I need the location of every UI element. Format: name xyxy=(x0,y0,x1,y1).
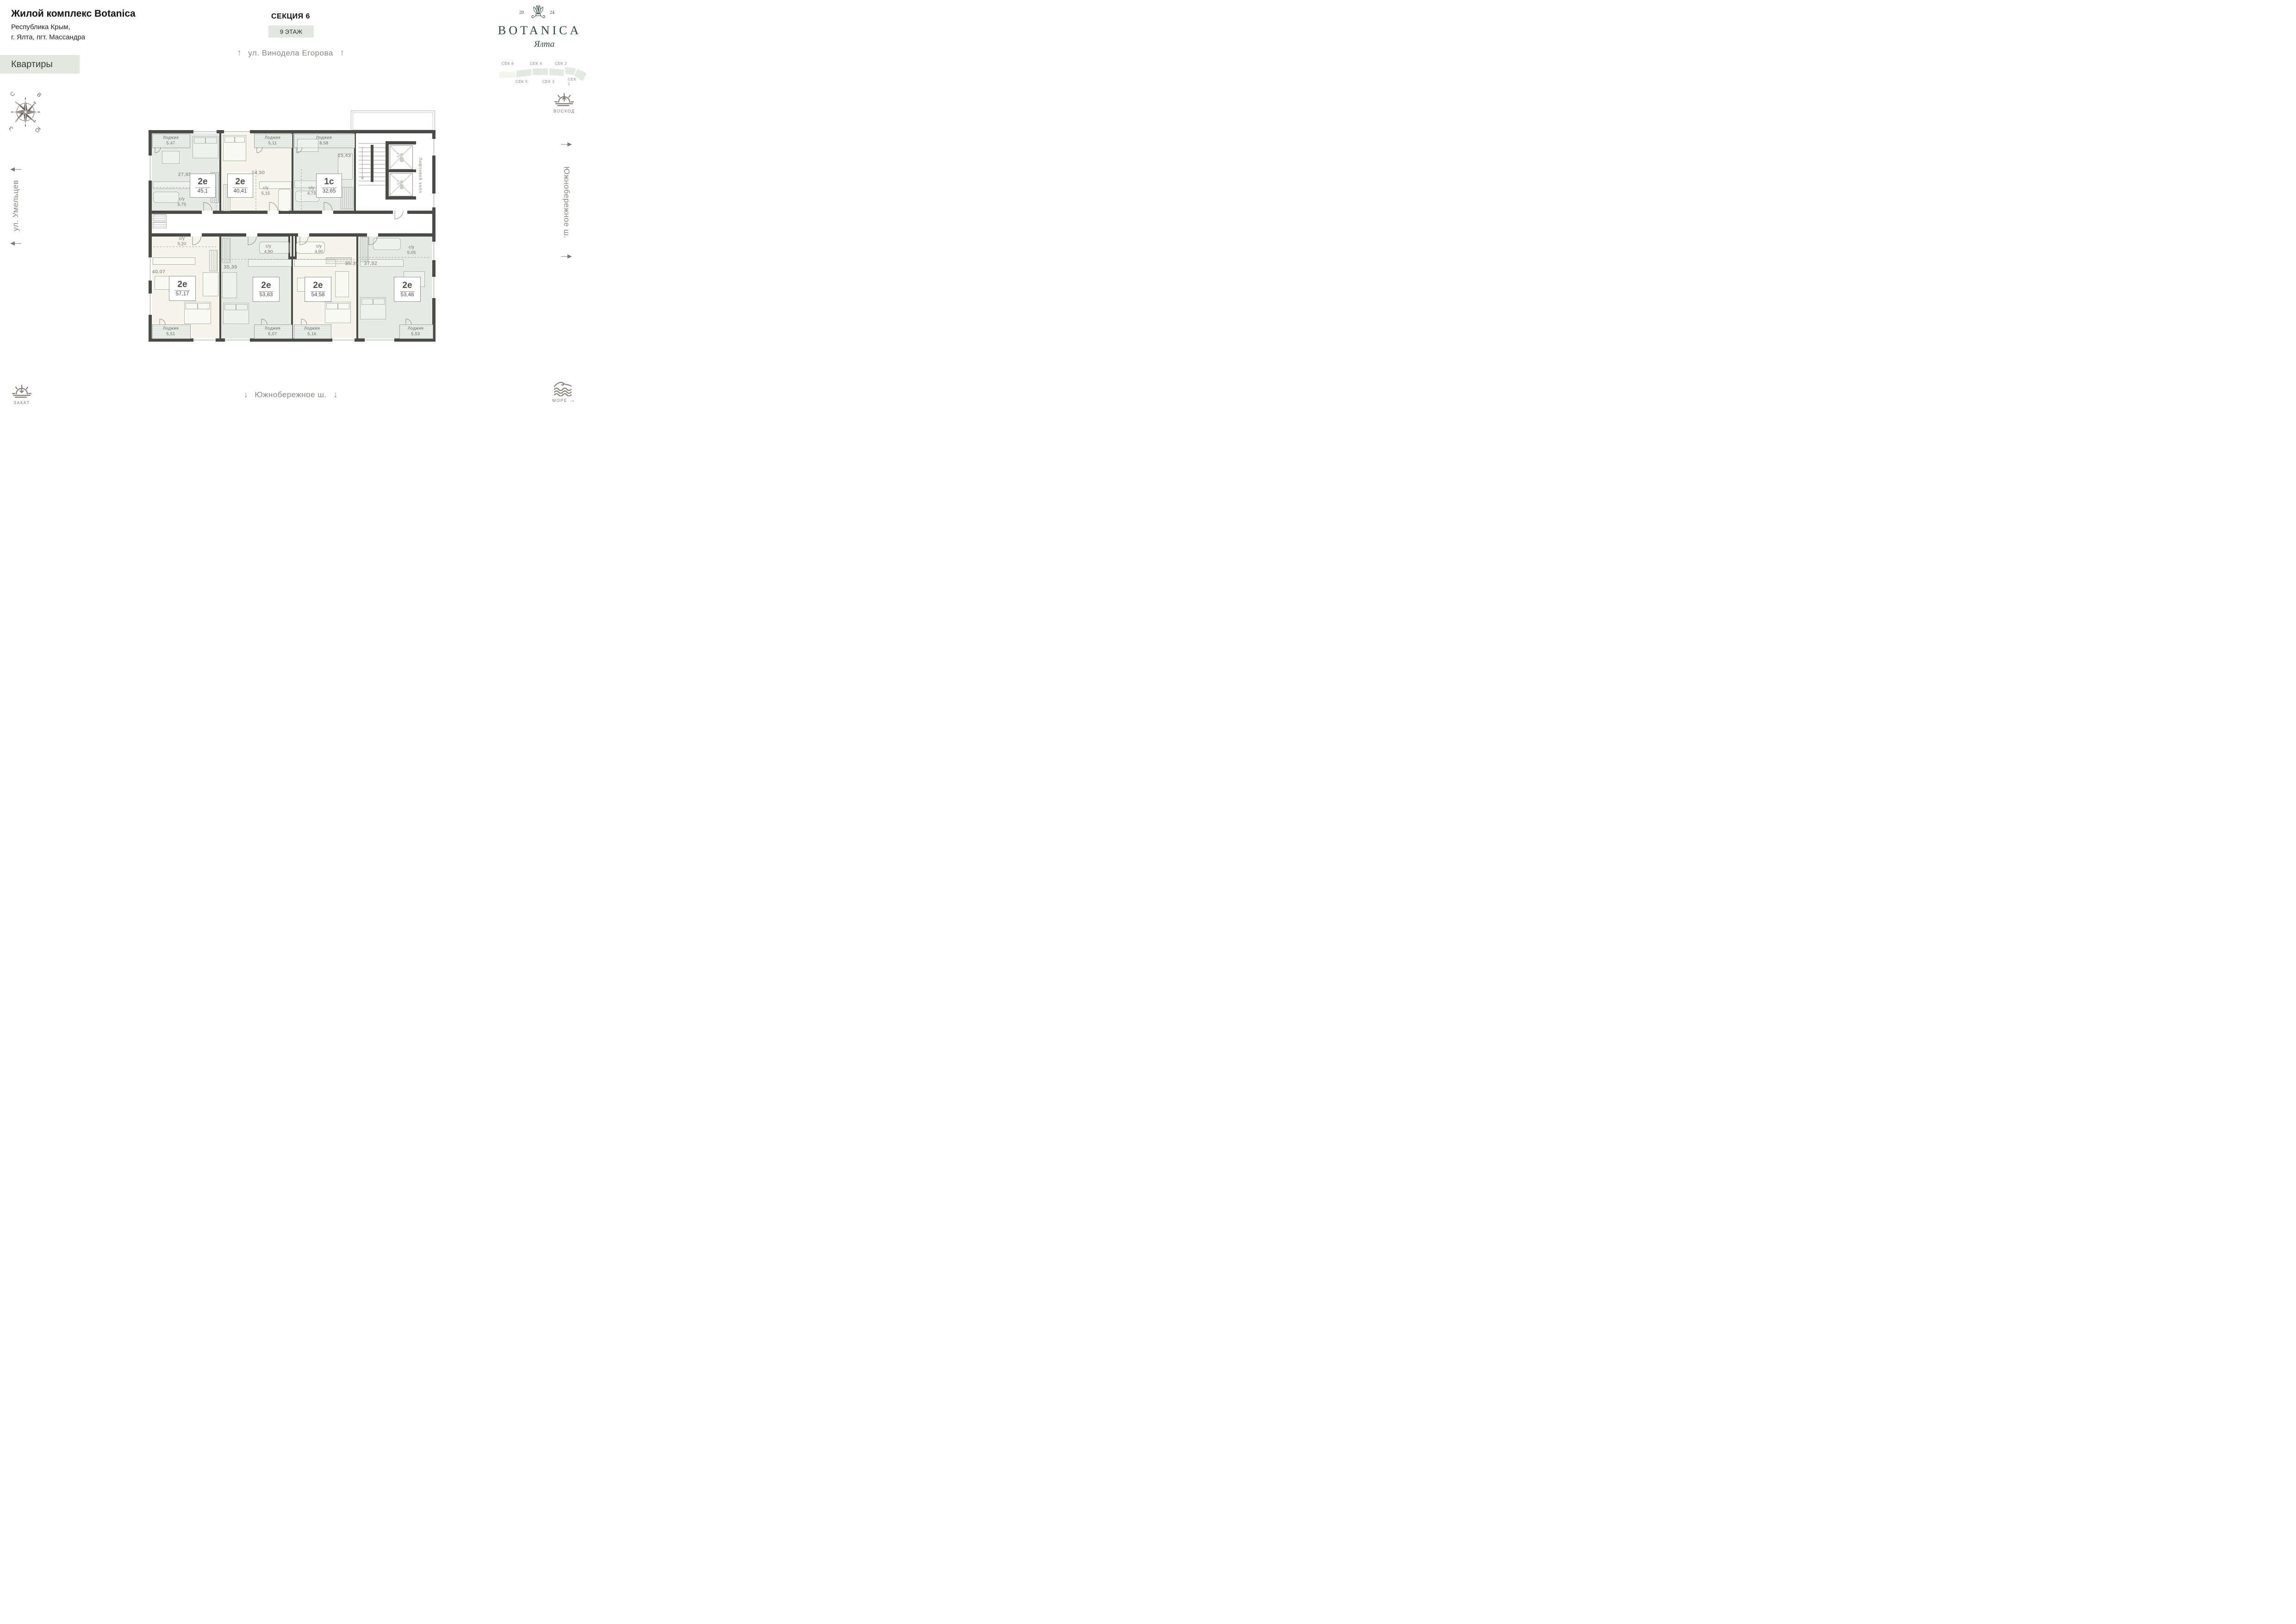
street-bottom: ↓ Южнобережное ш. ↓ xyxy=(243,390,337,400)
room-area-label: 35,39 xyxy=(345,261,359,266)
palmette-ornament-icon xyxy=(529,3,547,21)
apartment-area: 54,58 xyxy=(311,292,325,298)
apartment-type: 2е xyxy=(177,280,187,289)
badge-divider xyxy=(322,187,336,188)
section-map-label-4: СЕК 4 xyxy=(530,61,542,66)
apartment-badge-5[interactable]: 2е53,83 xyxy=(253,277,280,302)
arrow-down-icon: ↓ xyxy=(333,390,338,400)
arrow-down-icon: ↓ xyxy=(243,390,248,400)
logo-name: BOTANICA xyxy=(498,24,581,37)
compass-west-label: З xyxy=(7,125,14,132)
section-map-label-3: СЕК 3 xyxy=(542,79,554,84)
section-map-label-6: СЕК 6 xyxy=(502,61,514,66)
logo-year-left: 20 xyxy=(519,10,524,15)
section-map-label-5: СЕК 5 xyxy=(516,79,528,84)
address-line-1: Республика Крым, xyxy=(11,23,70,31)
street-right-arrow-icon xyxy=(561,142,572,147)
loggia-label: Лоджия8,58 xyxy=(316,135,332,146)
loggia-label: Лоджия5,47 xyxy=(163,135,179,146)
page-title: Жилой комплекс Botanica xyxy=(11,8,136,19)
badge-divider xyxy=(195,187,210,188)
street-left-arrow-icon xyxy=(10,241,21,246)
apartment-area: 53,83 xyxy=(260,292,273,298)
lift-hall-label: Лифтовойхолл xyxy=(417,156,423,195)
section-map-label-1: СЕК 1 xyxy=(568,77,576,86)
street-top-label: ул. Винодела Егорова xyxy=(248,49,333,57)
bathroom-label: с/у4,90 xyxy=(315,244,324,256)
bathroom-label: с/у4,90 xyxy=(264,244,273,256)
apartment-badge-2[interactable]: 2е40,41 xyxy=(227,174,253,198)
sunrise-icon xyxy=(554,93,574,106)
apartment-type: 2е xyxy=(313,281,323,290)
street-right-arrow-icon xyxy=(561,254,572,259)
room-area-label: 40,07 xyxy=(152,269,166,275)
bathroom-label: с/у5,05 xyxy=(407,245,416,256)
apartment-area: 32,65 xyxy=(323,188,336,194)
section-strip-4 xyxy=(532,68,548,75)
loggia-label: Лоджия5,16 xyxy=(304,325,320,337)
apartment-area: 53,48 xyxy=(401,292,414,298)
compass-south-label: Ю xyxy=(34,125,42,132)
badge-divider xyxy=(259,291,274,292)
logo-city: Ялта xyxy=(534,39,554,50)
badge-divider xyxy=(175,290,190,291)
section-strip-3 xyxy=(549,68,564,76)
arrow-up-icon: ↑ xyxy=(237,48,242,58)
badge-divider xyxy=(233,187,247,188)
sea-label-text: МОРЕ xyxy=(553,398,568,403)
stair-stringer xyxy=(371,145,373,182)
floor-badge-label: 9 ЭТАЖ xyxy=(280,28,302,35)
apartment-badge-3[interactable]: 1с32,65 xyxy=(316,174,342,198)
bathroom-label: с/у4,73 xyxy=(307,186,316,197)
apartment-area: 45,1 xyxy=(198,188,208,194)
loggia-label: Лоджия5,11 xyxy=(265,135,280,146)
loggia-label: Лоджия5,07 xyxy=(265,325,280,337)
loggia-label: Лоджия5,51 xyxy=(163,325,179,337)
arrow-up-icon: ↑ xyxy=(340,48,344,58)
sea-arrow-icon: → xyxy=(569,397,575,403)
tab-apartments[interactable]: Квартиры xyxy=(0,55,80,74)
section-title: СЕКЦИЯ 6 xyxy=(271,12,310,21)
address-line-2: г. Ялта, пгт. Массандра xyxy=(11,33,85,41)
apartment-type: 2е xyxy=(402,281,412,290)
plan-lineart xyxy=(149,110,436,342)
badge-divider xyxy=(400,291,415,292)
compass-rose-icon: С В З Ю xyxy=(6,90,44,132)
floor-badge: 9 ЭТАЖ xyxy=(268,25,314,37)
compass-north-label: С xyxy=(9,90,16,98)
room-area-label: 15,43 xyxy=(338,153,351,158)
street-bottom-label: Южнобережное ш. xyxy=(255,390,326,399)
bathroom-label: с/у5,75 xyxy=(178,197,187,208)
floor-plan-page: { "header": { "title": "Жилой комплекс B… xyxy=(0,0,574,406)
room-area-label: 24,50 xyxy=(252,170,265,175)
tab-apartments-label: Квартиры xyxy=(0,59,53,70)
sunrise-label: ВОСХОД xyxy=(554,109,575,113)
street-top: ↑ ул. Винодела Егорова ↑ xyxy=(237,48,344,58)
apartment-area: 40,41 xyxy=(234,188,247,194)
section-strip-6 xyxy=(499,71,516,78)
apartment-badge-1[interactable]: 2е45,1 xyxy=(190,174,216,198)
sunset-icon xyxy=(12,384,31,398)
room-area-label: 37,52 xyxy=(364,261,378,266)
section-map[interactable] xyxy=(499,66,591,88)
compass-east-label: В xyxy=(36,91,43,99)
apartment-type: 2е xyxy=(235,177,245,187)
apartment-badge-7[interactable]: 2е53,48 xyxy=(394,277,421,302)
street-left-arrow-icon xyxy=(10,167,21,172)
street-right-label: Южнобережное ш. xyxy=(562,166,571,238)
bathroom-label: с/у5,15 xyxy=(261,186,270,197)
apartment-type: 1с xyxy=(324,177,334,187)
apartment-badge-4[interactable]: 2е57,17 xyxy=(169,276,196,301)
apartment-area: 57,17 xyxy=(176,291,189,297)
apartment-type: 2е xyxy=(198,177,207,187)
loggia-label: Лоджия5,53 xyxy=(408,325,423,337)
apartment-badge-6[interactable]: 2е54,58 xyxy=(305,277,331,302)
section-map-label-2: СЕК 2 xyxy=(555,61,567,66)
sunset-label: ЗАКАТ xyxy=(14,400,30,405)
sea-waves-icon xyxy=(554,381,574,396)
room-area-label: 35,39 xyxy=(224,264,237,270)
bathroom-label: с/у5,20 xyxy=(178,236,187,248)
badge-divider xyxy=(311,291,325,292)
street-left-label: ул. Умельцев xyxy=(11,180,20,231)
logo-year-right: 24 xyxy=(550,10,554,15)
apartment-type: 2е xyxy=(261,281,271,290)
section-strip-5 xyxy=(516,69,532,78)
sea-label: МОРЕ → xyxy=(553,396,575,404)
